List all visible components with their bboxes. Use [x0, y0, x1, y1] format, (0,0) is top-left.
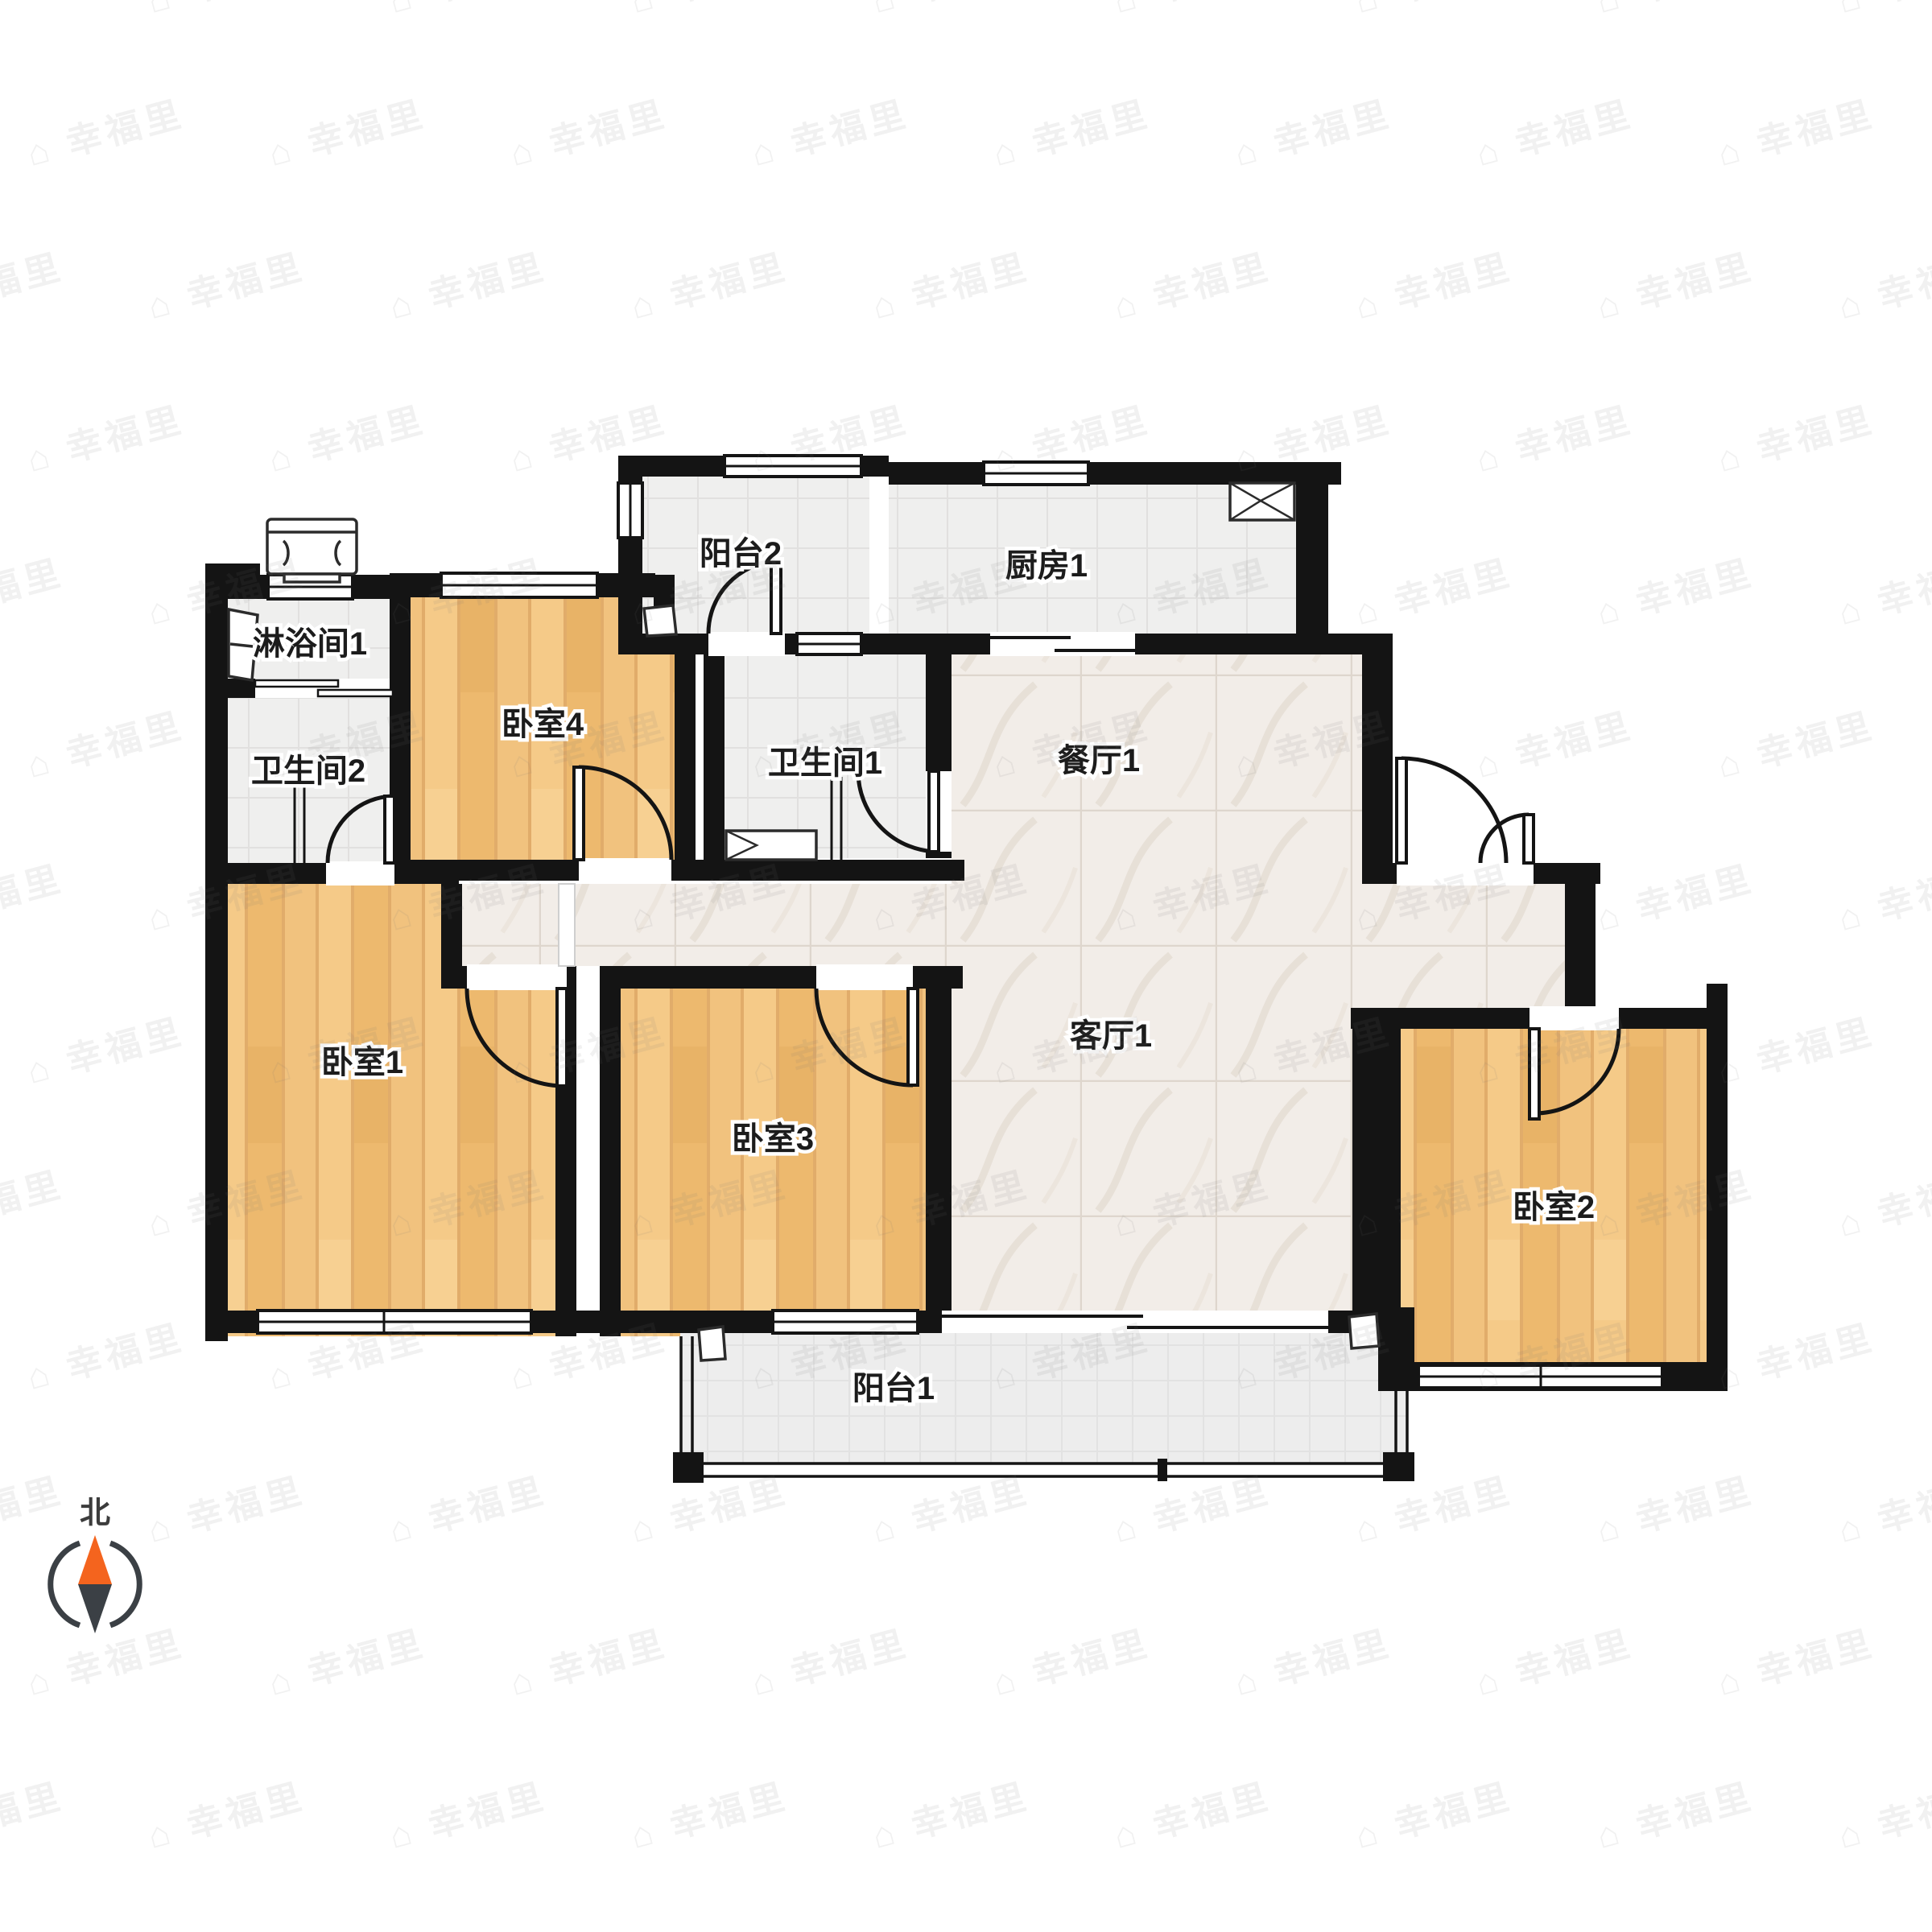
room-label-bedroom-1: 卧室1: [321, 1045, 403, 1080]
washing-machine-icon: [267, 519, 357, 574]
door-leaf-entry-small: [1524, 815, 1534, 863]
wall-segment: [221, 679, 255, 698]
room-label-kitchen-1: 厨房1: [1005, 548, 1088, 584]
door-leaf-bedroom-1: [557, 989, 567, 1086]
balcony2-cabinet-icon: [644, 605, 676, 636]
door-leaf-entry-main: [1397, 758, 1406, 863]
door-leaf-bathroom-1: [929, 771, 939, 852]
compass-ring: [51, 1543, 80, 1625]
wall-segment: [1352, 1008, 1378, 1333]
opening-balcony2-door: [708, 632, 785, 656]
wall-segment: [889, 462, 1341, 485]
wall-segment: [675, 654, 696, 860]
door-leaf-balcony-2: [771, 561, 781, 634]
floor-plan-canvas: 淋浴间1 卫生间2 卧室4 阳台2 厨房1 卫生间1 餐厅1 客厅1 卧室1 卧…: [0, 0, 1932, 1932]
wall-segment: [1362, 634, 1393, 863]
room-label-balcony-2: 阳台2: [700, 536, 782, 572]
balcony-post: [673, 1452, 704, 1483]
door-leaf-bathroom-2: [385, 796, 394, 863]
wall-segment: [600, 966, 621, 1336]
bathroom1-sink-icon: [726, 831, 816, 860]
room-floor-balcony-1: [680, 1333, 1407, 1463]
compass-ring: [110, 1543, 139, 1625]
room-label-bedroom-4: 卧室4: [502, 707, 584, 742]
washing-machine-base: [284, 574, 340, 582]
hallway-threshold: [559, 884, 575, 966]
door-leaf-bedroom-3: [908, 989, 918, 1085]
compass-needle-north: [78, 1535, 112, 1584]
compass-needle-south: [78, 1584, 112, 1633]
room-floor-bedroom-3: [621, 989, 926, 1336]
wall-segment: [1378, 1029, 1401, 1362]
compass: 北: [51, 1496, 140, 1633]
balcony-corner-fixture: [1349, 1314, 1379, 1348]
room-label-bedroom-2: 卧室2: [1513, 1190, 1595, 1225]
floor-plan-svg: 淋浴间1 卫生间2 卧室4 阳台2 厨房1 卫生间1 餐厅1 客厅1 卧室1 卧…: [0, 0, 1932, 1932]
room-label-shower-room-1: 淋浴间1: [253, 626, 367, 662]
room-label-bathroom-2: 卫生间2: [251, 753, 365, 789]
room-label-bedroom-3: 卧室3: [732, 1121, 814, 1157]
hallway-floor: [462, 884, 952, 966]
room-label-bathroom-1: 卫生间1: [768, 745, 882, 781]
opening-entry-door: [1397, 861, 1534, 885]
door-leaf-bedroom-2: [1529, 1029, 1539, 1119]
wall-segment: [1707, 984, 1728, 1391]
door-leaf-bedroom-4: [574, 767, 584, 860]
room-label-living-room-1: 客厅1: [1070, 1018, 1152, 1054]
wall-segment: [409, 860, 964, 881]
wall-segment: [205, 1302, 228, 1341]
room-label-balcony-1: 阳台1: [852, 1371, 935, 1406]
wall-segment: [926, 966, 952, 1333]
opening-bedroom1-door: [467, 964, 567, 990]
opening-bedroom3-door: [816, 964, 913, 990]
balcony-post: [1383, 1452, 1414, 1481]
room-label-dining-room-1: 餐厅1: [1058, 743, 1140, 778]
door-arc-entry-main: [1402, 758, 1506, 863]
opening-bedroom4-door: [579, 858, 671, 882]
wall-segment: [704, 654, 724, 860]
opening-bedroom2-door: [1529, 1006, 1619, 1030]
opening-kitchen-pass: [990, 632, 1135, 656]
wall-segment: [1565, 863, 1596, 1008]
opening-bathroom2-door: [326, 861, 394, 885]
balcony-corner-fixture: [699, 1327, 725, 1360]
shower-divider-screen: [255, 680, 338, 687]
wall-segment: [1296, 462, 1328, 634]
balcony-post: [1158, 1459, 1167, 1481]
sliding-door-living-balcony: [942, 1311, 1328, 1333]
compass-north-label: 北: [80, 1496, 110, 1530]
shower-divider-screen: [318, 690, 393, 696]
